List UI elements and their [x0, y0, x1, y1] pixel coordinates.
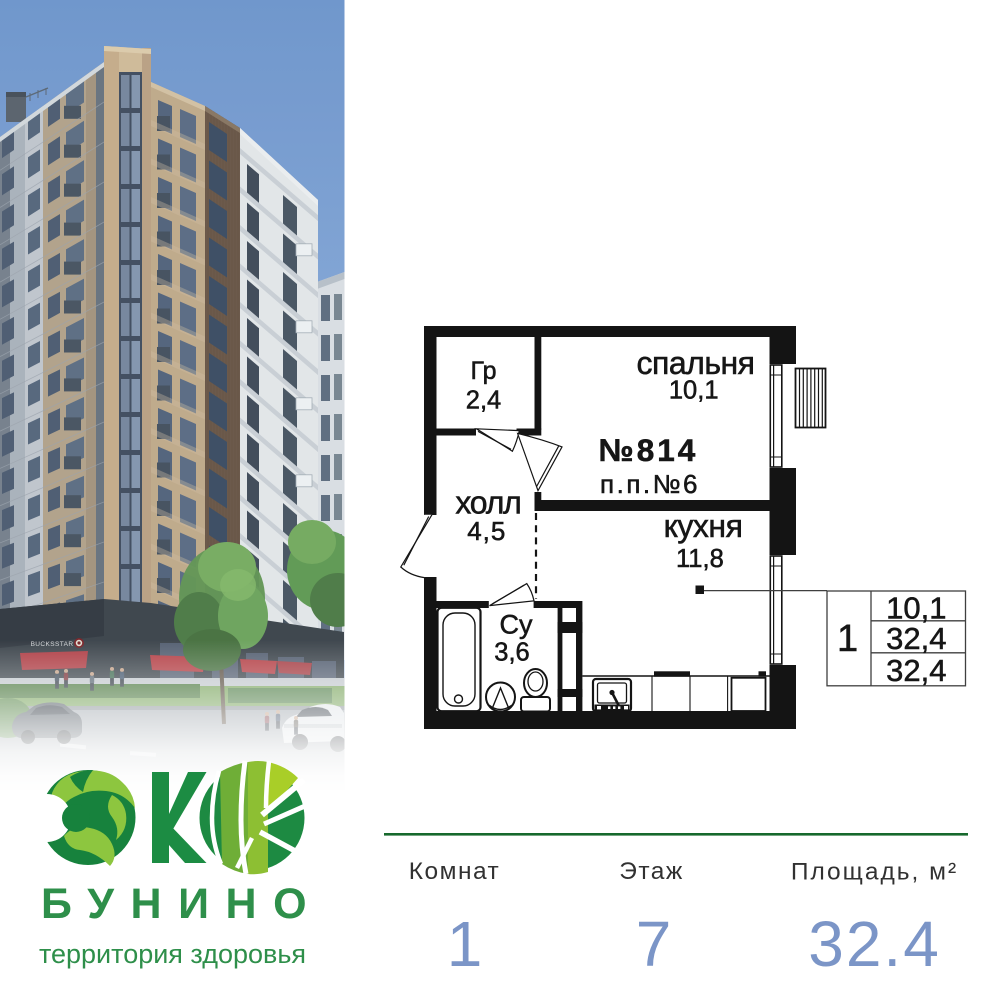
svg-text:11,8: 11,8 [676, 545, 724, 573]
svg-text:кухня: кухня [664, 508, 743, 544]
svg-text:32,4: 32,4 [886, 621, 946, 656]
svg-text:территория здоровья: территория здоровья [39, 939, 306, 969]
svg-text:Су: Су [500, 610, 533, 640]
svg-text:4,5: 4,5 [467, 516, 506, 546]
svg-text:1: 1 [837, 618, 858, 660]
svg-text:2,4: 2,4 [466, 387, 501, 415]
svg-text:п.п.№6: п.п.№6 [600, 469, 700, 499]
svg-text:32,4: 32,4 [886, 653, 946, 688]
svg-text:1: 1 [447, 908, 483, 980]
svg-text:БУНИНО: БУНИНО [41, 880, 323, 928]
svg-text:Площадь, м²: Площадь, м² [791, 859, 958, 886]
svg-text:№814: №814 [599, 432, 699, 468]
svg-text:Комнат: Комнат [409, 858, 501, 885]
svg-text:7: 7 [636, 908, 672, 980]
svg-text:3,6: 3,6 [494, 639, 529, 667]
svg-text:Гр: Гр [470, 357, 496, 385]
svg-text:Этаж: Этаж [619, 858, 684, 885]
svg-text:10,1: 10,1 [669, 377, 719, 405]
svg-text:32.4: 32.4 [808, 908, 941, 980]
